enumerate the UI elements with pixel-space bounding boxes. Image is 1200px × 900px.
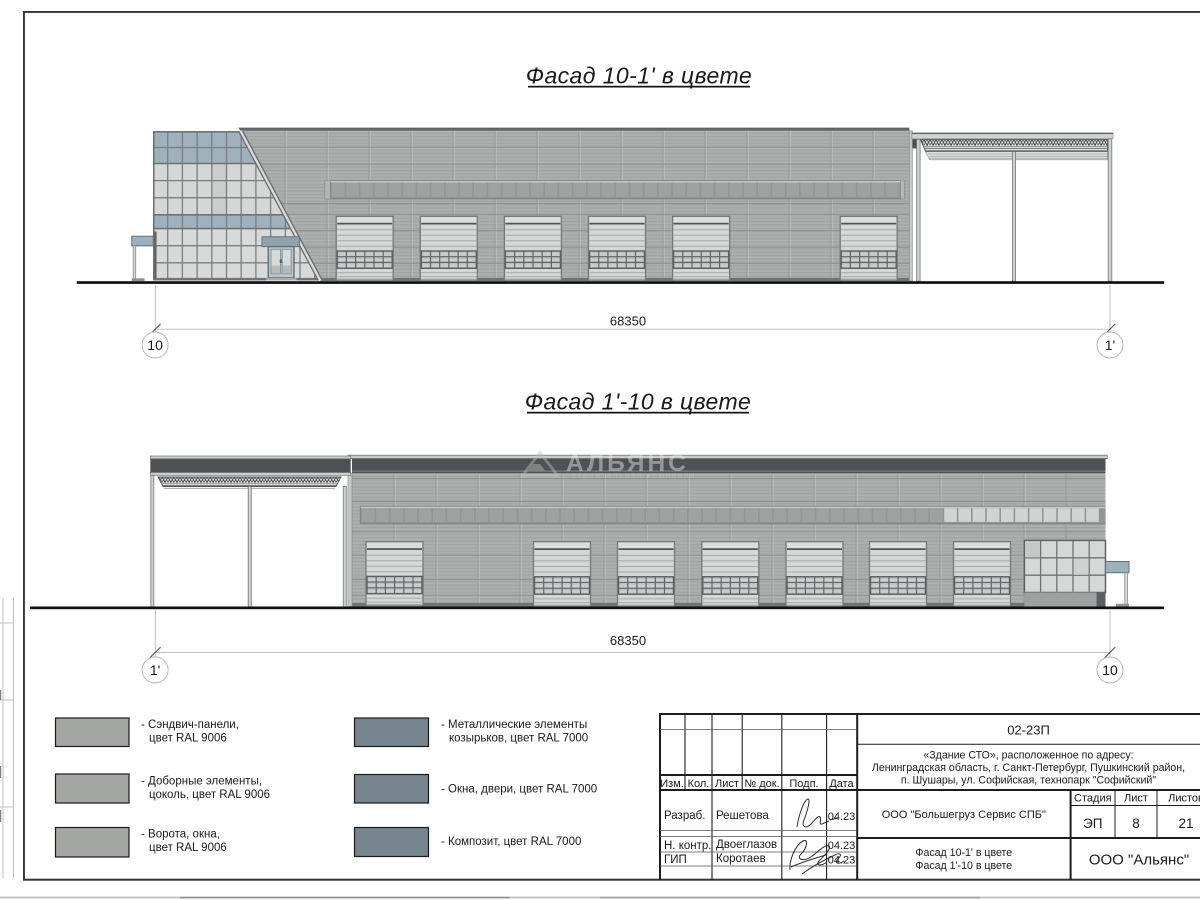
svg-text:№ док.: № док. xyxy=(744,778,779,790)
svg-text:04.23: 04.23 xyxy=(828,811,856,823)
svg-text:Фасад 1'-10 в цвете: Фасад 1'-10 в цвете xyxy=(915,860,1012,872)
svg-text:цвет RAL 9006: цвет RAL 9006 xyxy=(149,733,227,745)
svg-text:68350: 68350 xyxy=(610,314,646,329)
svg-text:21: 21 xyxy=(1178,816,1193,831)
svg-text:04.23: 04.23 xyxy=(828,840,856,852)
svg-text:Листов: Листов xyxy=(1168,793,1200,805)
svg-text:10: 10 xyxy=(1102,662,1118,678)
svg-text:цоколь, цвет RAL 9006: цоколь, цвет RAL 9006 xyxy=(149,789,270,801)
svg-text:цвет RAL 9006: цвет RAL 9006 xyxy=(149,842,227,854)
svg-text:- Окна, двери, цвет RAL 7000: - Окна, двери, цвет RAL 7000 xyxy=(441,784,597,796)
svg-text:«Здание СТО», расположенное по: «Здание СТО», расположенное по адресу: xyxy=(923,750,1133,762)
svg-text:10: 10 xyxy=(147,337,163,353)
svg-text:Подп.: Подп. xyxy=(789,778,818,790)
svg-text:68350: 68350 xyxy=(610,633,646,648)
svg-text:п. Шушары, ул. Софийская, техн: п. Шушары, ул. Софийская, технопарк "Соф… xyxy=(901,775,1156,787)
svg-text:Двоеглазов: Двоеглазов xyxy=(716,839,777,851)
svg-text:Стадия: Стадия xyxy=(1074,793,1112,805)
svg-text:ООО "Большегруз Сервис СПБ": ООО "Большегруз Сервис СПБ" xyxy=(882,809,1046,821)
svg-text:Фасад 10-1' в цвете: Фасад 10-1' в цвете xyxy=(915,847,1012,859)
svg-text:1': 1' xyxy=(1105,337,1115,353)
svg-text:ГИП: ГИП xyxy=(664,854,687,866)
svg-text:ООО "Альянс": ООО "Альянс" xyxy=(1089,852,1189,869)
svg-text:Ленинградская область, г. Санк: Ленинградская область, г. Санкт-Петербур… xyxy=(872,762,1185,774)
svg-text:1': 1' xyxy=(150,662,160,678)
svg-text:Разраб.: Разраб. xyxy=(664,810,705,822)
svg-text:- Доборные элементы,: - Доборные элементы, xyxy=(141,776,262,788)
svg-text:Лист: Лист xyxy=(1124,793,1148,805)
svg-text:Фасад 1'-10 в цвете: Фасад 1'-10 в цвете xyxy=(525,389,751,415)
svg-text:строительная компания: строительная компания xyxy=(572,471,696,480)
svg-text:Решетова: Решетова xyxy=(716,810,769,822)
svg-text:Изм.: Изм. xyxy=(660,778,684,790)
svg-text:Дата: Дата xyxy=(829,778,854,790)
svg-text:козырьков, цвет RAL 7000: козырьков, цвет RAL 7000 xyxy=(449,733,588,745)
svg-text:Н. контр.: Н. контр. xyxy=(664,840,711,852)
svg-text:8: 8 xyxy=(1132,816,1140,831)
svg-text:- Сэндвич-панели,: - Сэндвич-панели, xyxy=(141,719,239,731)
svg-text:- Композит, цвет RAL 7000: - Композит, цвет RAL 7000 xyxy=(441,836,581,848)
svg-text:02-23П: 02-23П xyxy=(1007,723,1050,738)
svg-text:Коротаев: Коротаев xyxy=(716,853,766,865)
svg-text:Лист: Лист xyxy=(715,778,739,790)
svg-text:ЭП: ЭП xyxy=(1083,816,1102,831)
svg-text:Фасад 10-1' в цвете: Фасад 10-1' в цвете xyxy=(526,63,752,89)
svg-text:Кол.: Кол. xyxy=(688,778,710,790)
svg-text:- Металлические элементы: - Металлические элементы xyxy=(441,719,587,731)
svg-text:- Ворота, окна,: - Ворота, окна, xyxy=(141,829,220,841)
